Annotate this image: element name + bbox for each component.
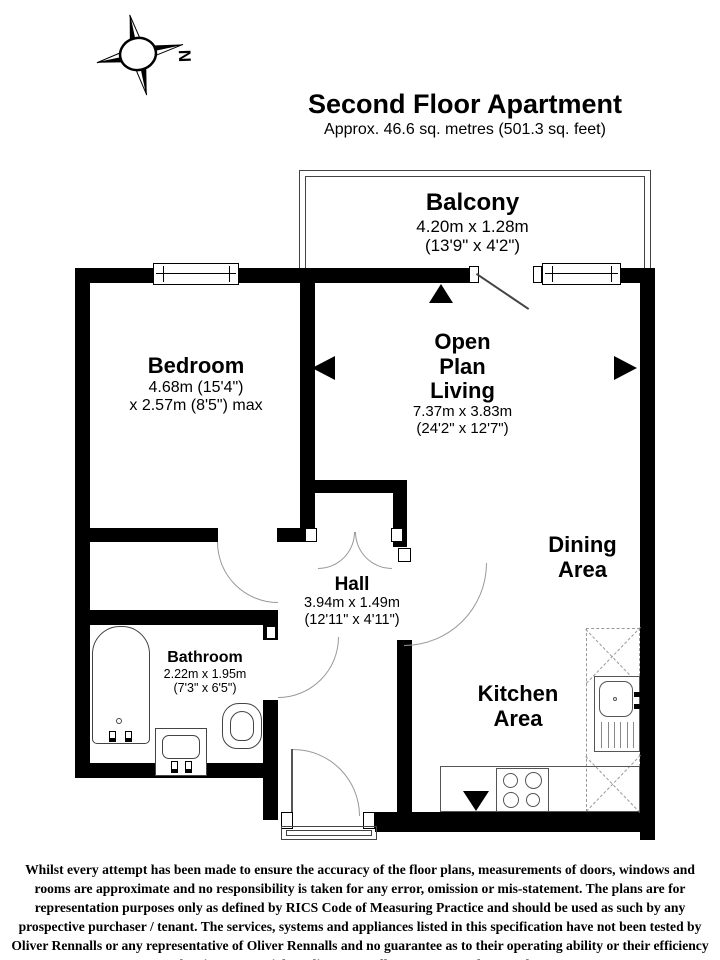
hob-burner xyxy=(526,793,540,807)
balcony-name: Balcony xyxy=(360,190,585,217)
balcony-dims-metric: 4.20m x 1.28m xyxy=(360,217,585,236)
bathroom-label: Bathroom 2.22m x 1.95m (7'3" x 6'5") xyxy=(130,649,280,695)
wall-bedroom-bottom xyxy=(75,528,218,542)
sink-tap-left xyxy=(171,761,178,773)
kitchen-tap-top xyxy=(634,692,643,697)
floor-plan-page: N Second Floor Apartment Approx. 46.6 sq… xyxy=(0,0,720,960)
hob-burner xyxy=(503,792,519,808)
hall-dims-metric: 3.94m x 1.49m xyxy=(262,595,442,611)
dining-label: Dining Area xyxy=(515,533,650,582)
entrance-door-leaf xyxy=(291,749,293,816)
bedroom-label: Bedroom 4.68m (15'4") x 2.57m (8'5") max xyxy=(96,354,296,414)
hall-double-door-right-arc xyxy=(355,532,392,569)
toilet-bowl xyxy=(230,711,254,741)
living-label: Open Plan Living 7.37m x 3.83m (24'2" x … xyxy=(380,330,545,437)
kitchen-label: Kitchen Area xyxy=(443,682,593,731)
north-label: N xyxy=(175,49,194,62)
living-window-jamb xyxy=(533,266,542,283)
marker-left-icon xyxy=(312,356,335,380)
bathroom-sink-basin xyxy=(162,735,200,759)
entrance-door-arc xyxy=(293,749,360,816)
living-name-2: Plan xyxy=(380,355,545,380)
bedroom-window-tick-r xyxy=(229,266,230,282)
drainer-line xyxy=(614,722,615,748)
kitchen-sink-drain xyxy=(613,697,617,701)
drainer-line xyxy=(608,722,609,748)
plan-title-block: Second Floor Apartment Approx. 46.6 sq. … xyxy=(240,90,690,139)
hall-door-hinge-left xyxy=(305,528,317,542)
wall-entry-left xyxy=(263,763,278,820)
page-subtitle: Approx. 46.6 sq. metres (501.3 sq. feet) xyxy=(240,121,690,139)
kitchen-door-hinge xyxy=(398,548,411,562)
hall-dims-imperial: (12'11" x 4'11") xyxy=(262,612,442,628)
living-dims-metric: 7.37m x 3.83m xyxy=(380,404,545,421)
dining-name-1: Dining xyxy=(515,533,650,558)
drainer-line xyxy=(627,722,628,748)
kitchen-name-2: Area xyxy=(443,707,593,732)
bedroom-window-line xyxy=(156,273,236,274)
bathroom-dims-metric: 2.22m x 1.95m xyxy=(130,667,280,681)
marker-right-icon xyxy=(614,356,637,380)
drainer-line xyxy=(633,722,634,748)
living-window xyxy=(542,263,621,285)
living-name-1: Open xyxy=(380,330,545,355)
bathtub-drain xyxy=(116,718,122,724)
bathtub-tap-left xyxy=(109,731,116,742)
bathtub-tap-right xyxy=(125,731,132,742)
wall-kitchen-left xyxy=(397,640,412,815)
wall-top-b xyxy=(238,268,475,283)
bedroom-name: Bedroom xyxy=(96,354,296,379)
living-window-tick-l xyxy=(552,266,553,282)
dining-name-2: Area xyxy=(515,558,650,583)
drainer-line xyxy=(601,722,602,748)
bedroom-dims-2: x 2.57m (8'5") max xyxy=(96,397,296,415)
hall-name: Hall xyxy=(262,574,442,595)
bathroom-door-arc xyxy=(278,637,339,698)
disclaimer-text: Whilst every attempt has been made to en… xyxy=(8,860,712,960)
living-dims-imperial: (24'2" x 12'7") xyxy=(380,421,545,438)
bedroom-window xyxy=(153,263,239,285)
bedroom-dims-1: 4.68m (15'4") xyxy=(96,379,296,397)
balcony-label: Balcony 4.20m x 1.28m (13'9" x 4'2") xyxy=(360,190,585,255)
balcony-door-leaf xyxy=(476,273,529,310)
drainer-line xyxy=(620,722,621,748)
kitchen-tap-bottom xyxy=(634,704,643,709)
compass-icon: N xyxy=(84,4,196,106)
wall-left xyxy=(75,268,90,778)
living-name-3: Living xyxy=(380,379,545,404)
living-window-tick-r xyxy=(611,266,612,282)
bathroom-name: Bathroom xyxy=(130,649,280,667)
hall-door-hinge-right xyxy=(391,528,403,542)
hall-double-door-left-arc xyxy=(318,532,355,569)
hall-label: Hall 3.94m x 1.49m (12'11" x 4'11") xyxy=(262,574,442,628)
wall-bathroom-right-lower xyxy=(263,700,278,763)
entrance-sill-inner xyxy=(286,830,372,836)
hob-burner xyxy=(525,772,542,789)
kitchen-name-1: Kitchen xyxy=(443,682,593,707)
balcony-dims-imperial: (13'9" x 4'2") xyxy=(360,236,585,255)
wall-bottom xyxy=(375,812,655,832)
wall-bathroom-top xyxy=(75,610,263,625)
hob-burner xyxy=(503,773,518,788)
sink-tap-right xyxy=(185,761,192,773)
bathroom-dims-imperial: (7'3" x 6'5") xyxy=(130,681,280,695)
bedroom-window-tick-l xyxy=(163,266,164,282)
bathroom-door-hinge xyxy=(266,626,276,639)
page-title: Second Floor Apartment xyxy=(240,90,690,118)
wall-bedroom-right xyxy=(300,283,315,542)
marker-up-icon xyxy=(429,284,453,303)
living-window-line xyxy=(545,273,618,274)
